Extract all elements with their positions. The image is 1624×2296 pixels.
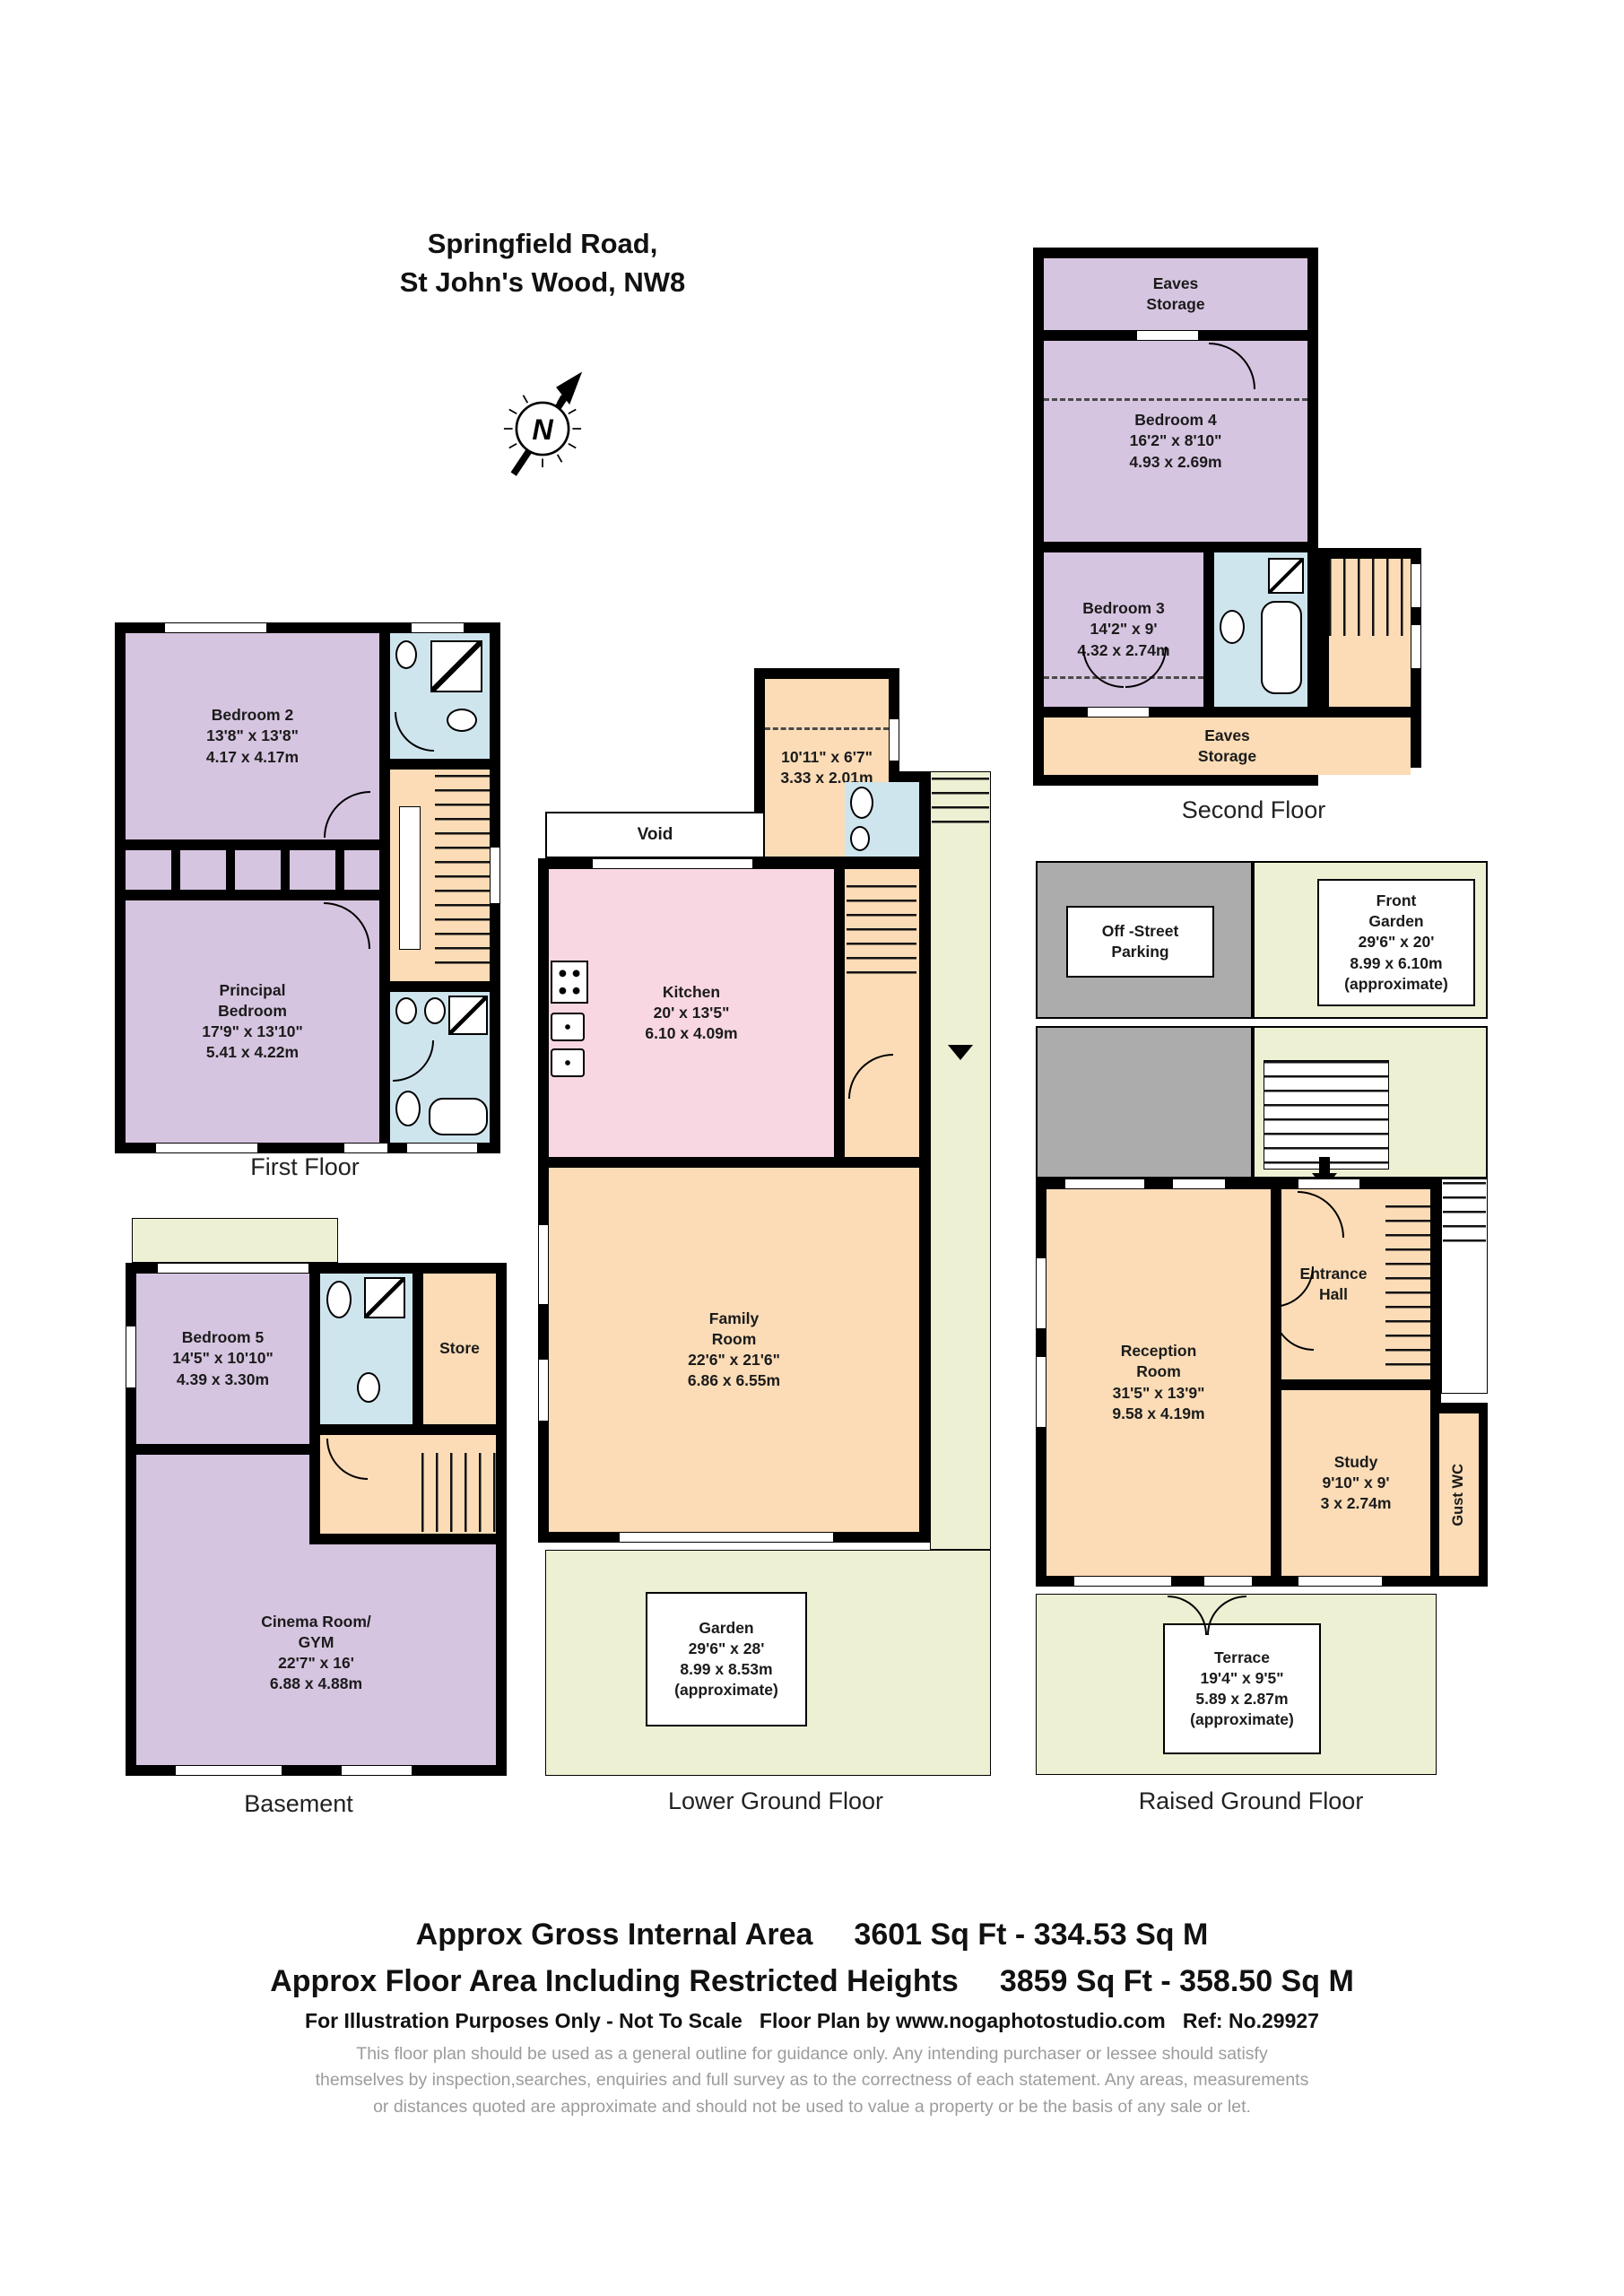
stair-banister	[399, 806, 421, 950]
stairs-first	[435, 775, 490, 972]
toilet-icon	[447, 709, 477, 732]
window	[1087, 707, 1150, 717]
side-steps	[932, 778, 989, 826]
path-arrow-icon	[948, 1045, 973, 1060]
window	[406, 1143, 478, 1153]
window	[1411, 624, 1421, 669]
room-store: Store	[423, 1274, 496, 1424]
restricted-height-line	[1044, 398, 1307, 401]
gia-value: 3601 Sq Ft - 334.53 Sq M	[854, 1918, 1208, 1952]
second-floor-label: Second Floor	[1119, 796, 1388, 824]
window	[1064, 1178, 1145, 1189]
shower-icon	[430, 640, 482, 692]
garden-label-box: Garden 29'6" x 28' 8.99 x 8.53m (approxi…	[646, 1592, 807, 1726]
compass-icon: N	[484, 366, 601, 491]
basin-icon	[850, 826, 870, 851]
fa-value: 3859 Sq Ft - 358.50 Sq M	[1000, 1964, 1354, 1998]
room-reception: Reception Room 31'5" x 13'9" 9.58 x 4.19…	[1046, 1189, 1271, 1576]
terrace-label-box: Terrace 19'4" x 9'5" 5.89 x 2.87m (appro…	[1163, 1623, 1321, 1754]
toilet-icon	[850, 787, 873, 819]
window	[1411, 563, 1421, 608]
room-family-room: Family Room 22'6" x 21'6" 6.86 x 6.55m	[549, 1168, 919, 1532]
notice-line: For Illustration Purposes Only - Not To …	[0, 2009, 1624, 2033]
shower-icon	[448, 996, 488, 1035]
window	[1073, 1576, 1172, 1587]
parking-area	[1036, 1026, 1253, 1178]
toilet-icon	[326, 1281, 352, 1318]
room-cinema-gym-label: Cinema Room/ GYM 22'7" x 16' 6.88 x 4.88…	[136, 1577, 496, 1729]
bathtub-icon	[1261, 601, 1302, 694]
window	[157, 1263, 309, 1274]
parking-label-box: Off -Street Parking	[1066, 906, 1214, 978]
window	[1136, 330, 1199, 341]
window	[341, 1765, 413, 1776]
raised-ground-floor-plan: Off -Street Parking Front Garden 29'6" x…	[1029, 854, 1493, 1789]
first-floor-label: First Floor	[170, 1153, 439, 1181]
side-passage	[930, 771, 991, 1550]
window	[1036, 1356, 1046, 1428]
sink-icon	[551, 1048, 585, 1077]
window	[1298, 1576, 1383, 1587]
property-address: Springfield Road, St John's Wood, NW8	[341, 224, 744, 302]
lower-ground-floor-plan: 10'11" x 6'7" 3.33 x 2.01m Void Kitchen …	[538, 668, 991, 1783]
wardrobes	[126, 850, 379, 890]
stairs-raised	[1385, 1205, 1430, 1372]
shower-icon	[364, 1277, 405, 1318]
stairs-basement	[421, 1453, 496, 1532]
void-area: Void	[545, 812, 765, 858]
room-guest-wc: Gust WC	[1439, 1413, 1479, 1576]
window	[155, 1143, 258, 1153]
window	[889, 718, 899, 761]
basement-plan: Bedroom 5 14'5" x 10'10" 4.39 x 3.30m St…	[126, 1218, 507, 1785]
window	[619, 1532, 834, 1543]
disclaimer-text: This floor plan should be used as a gene…	[0, 2041, 1624, 2120]
window	[343, 1143, 388, 1153]
lower-ground-floor-label: Lower Ground Floor	[641, 1787, 910, 1815]
front-garden-label-box: Front Garden 29'6" x 20' 8.99 x 6.10m (a…	[1317, 879, 1475, 1006]
shower-icon	[1268, 558, 1304, 594]
compass-north-letter: N	[532, 413, 553, 446]
basin-icon	[357, 1372, 380, 1403]
window	[538, 1224, 549, 1305]
landing-second	[1329, 636, 1411, 707]
window	[538, 1359, 549, 1422]
window	[164, 622, 267, 633]
window	[126, 1326, 136, 1388]
room-bedroom-3: Bedroom 3 14'2" x 9' 4.32 x 2.74m	[1044, 552, 1203, 707]
basin-icon	[395, 997, 417, 1024]
stairs-second	[1329, 559, 1411, 636]
toilet-icon	[395, 1091, 421, 1126]
window	[592, 858, 753, 869]
room-eaves-storage-bottom: Eaves Storage	[1044, 717, 1411, 775]
stove-icon	[551, 961, 588, 1004]
restricted-height-line	[1044, 676, 1203, 679]
lightwell	[132, 1218, 338, 1263]
floorplan-page: Springfield Road, St John's Wood, NW8 N …	[0, 0, 1624, 2296]
floor-area-line: Approx Floor Area Including Restricted H…	[0, 1964, 1624, 1999]
fa-label: Approx Floor Area Including Restricted H…	[270, 1964, 959, 1998]
basin-icon	[395, 640, 417, 669]
restricted-height-line	[765, 727, 889, 730]
window	[411, 622, 465, 633]
raised-ground-floor-label: Raised Ground Floor	[1116, 1787, 1385, 1815]
entrance-arrow-stem	[1319, 1157, 1330, 1173]
bathtub-icon	[429, 1098, 488, 1135]
window	[490, 847, 500, 904]
window	[1036, 1257, 1046, 1329]
room-bedroom-5: Bedroom 5 14'5" x 10'10" 4.39 x 3.30m	[136, 1274, 309, 1444]
window	[1172, 1178, 1226, 1189]
second-floor-plan: Eaves Storage Bedroom 4 16'2" x 8'10" 4.…	[1033, 248, 1421, 786]
gia-label: Approx Gross Internal Area	[416, 1918, 813, 1952]
window	[1203, 1576, 1253, 1587]
room-study: Study 9'10" x 9' 3 x 2.74m	[1281, 1390, 1430, 1576]
room-eaves-storage-top: Eaves Storage	[1044, 258, 1307, 330]
room-kitchen: Kitchen 20' x 13'5" 6.10 x 4.09m	[549, 869, 834, 1157]
toilet-icon	[1220, 610, 1245, 644]
gross-internal-area-line: Approx Gross Internal Area3601 Sq Ft - 3…	[0, 1918, 1624, 1952]
basement-label: Basement	[164, 1790, 433, 1818]
room-bedroom-4: Bedroom 4 16'2" x 8'10" 4.93 x 2.69m	[1044, 341, 1307, 542]
front-door	[1298, 1178, 1360, 1189]
side-return-steps	[1443, 1182, 1486, 1254]
first-floor-plan: Bedroom 2 13'8" x 13'8" 4.17 x 4.17m Pri…	[115, 622, 500, 1153]
basin-icon	[424, 997, 446, 1024]
sink-icon	[551, 1013, 585, 1041]
window	[175, 1765, 282, 1776]
entrance-steps	[1264, 1060, 1389, 1170]
stairs-lower	[847, 885, 916, 975]
